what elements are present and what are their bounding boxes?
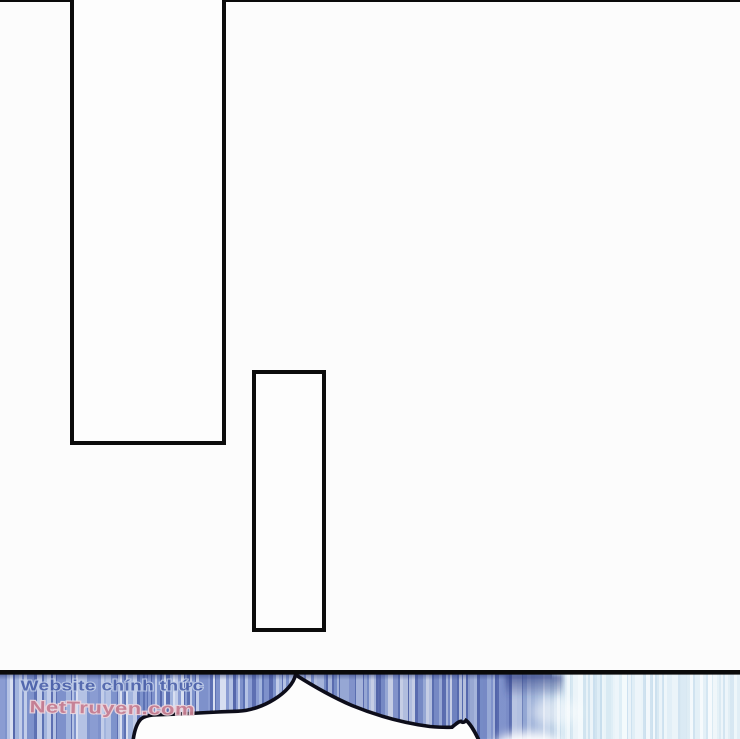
svg-text:NetTruyen.com: NetTruyen.com <box>29 698 195 719</box>
svg-text:Website chính thức: Website chính thức <box>21 677 204 694</box>
